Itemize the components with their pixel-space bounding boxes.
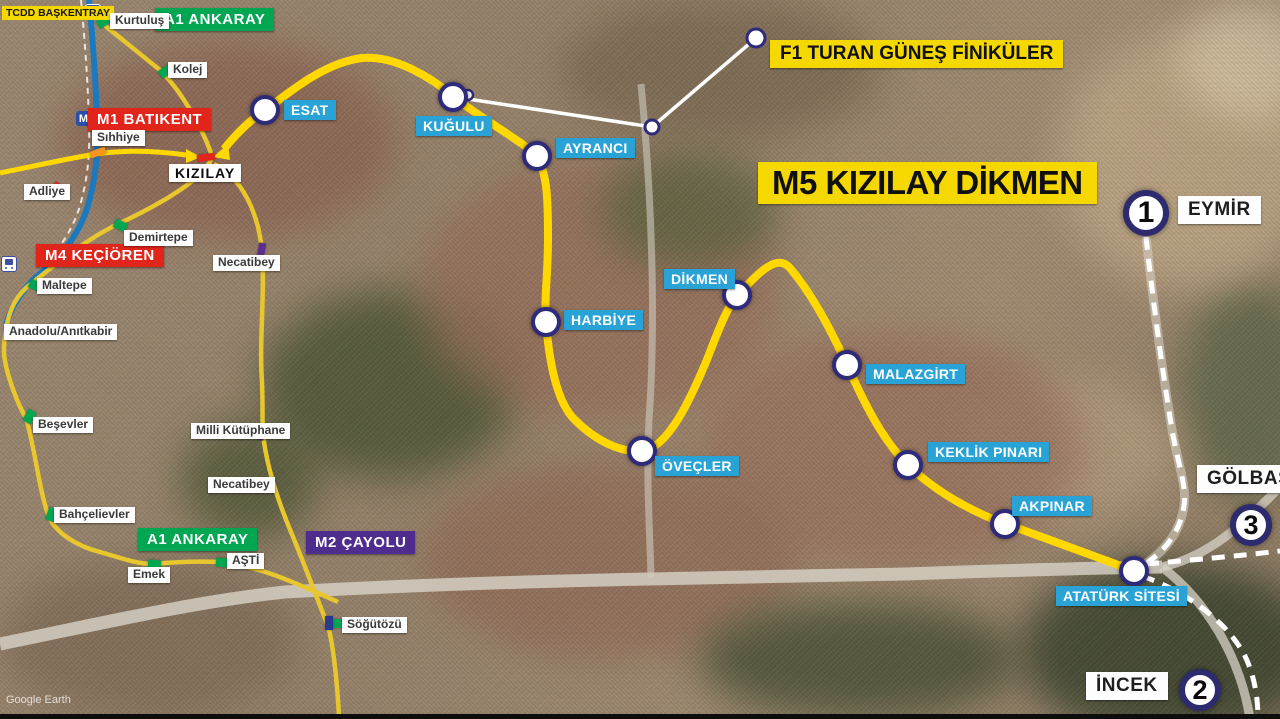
place-label-besevler: Beşevler	[33, 417, 93, 433]
road-dikmen-street	[641, 84, 652, 578]
place-label-adliye: Adliye	[24, 184, 70, 200]
station-malazgirt	[832, 350, 862, 380]
place-label-emek: Emek	[128, 567, 170, 583]
place-label-kolej: Kolej	[168, 62, 207, 78]
route-label-a1-ankaray-north: A1 ANKARAY	[155, 8, 274, 31]
station-label-ataturk-sitesi: ATATÜRK SİTESİ	[1056, 586, 1187, 606]
station-harbiye	[531, 307, 561, 337]
area-label-eymir: EYMİR	[1178, 196, 1261, 224]
numbered-marker-3: 3	[1230, 504, 1272, 546]
highway-road	[0, 567, 1162, 644]
google-earth-attribution: Google Earth	[6, 694, 71, 706]
station-label-ayranci: AYRANCI	[556, 138, 635, 158]
station-label-kugulu: KUĞULU	[416, 116, 492, 136]
place-label-asti: AŞTİ	[227, 553, 264, 569]
road-eymir	[1142, 237, 1185, 566]
station-esat	[250, 95, 280, 125]
m2-cayolu-line	[214, 164, 339, 716]
numbered-marker-2: 2	[1179, 669, 1221, 711]
place-label-bahcelievler: Bahçelievler	[54, 507, 135, 523]
route-label-m2-cayolu: M2 ÇAYOLU	[306, 531, 415, 554]
place-label-sogutozu: Söğütözü	[342, 617, 407, 633]
bottom-letterbox-bar	[0, 714, 1280, 719]
funicular-label: F1 TURAN GÜNEŞ FİNİKÜLER	[770, 40, 1063, 68]
route-label-m1-batikent: M1 BATIKENT	[88, 108, 211, 131]
place-label-anadolu-anitkabir: Anadolu/Anıtkabir	[4, 324, 117, 340]
place-label-kurtulus: Kurtuluş	[110, 13, 169, 29]
route-label-m4-kecioren: M4 KEÇİÖREN	[36, 244, 164, 267]
place-label-necatibey-north: Necatibey	[213, 255, 280, 271]
numbered-marker-1: 1	[1123, 190, 1169, 236]
blue-station-marker	[325, 616, 333, 630]
place-label-kizilay: KIZILAY	[169, 164, 241, 182]
station-label-akpinar: AKPINAR	[1012, 496, 1092, 516]
station-label-dikmen: DİKMEN	[664, 269, 735, 289]
station-ovecler	[627, 436, 657, 466]
station-ayranci	[522, 141, 552, 171]
station-label-harbiye: HARBİYE	[564, 310, 643, 330]
place-label-necatibey-south: Necatibey	[208, 477, 275, 493]
station-ataturk-sitesi	[1119, 556, 1149, 586]
area-label-golbasi: GÖLBAŞI	[1197, 465, 1280, 493]
station-label-malazgirt: MALAZGİRT	[866, 364, 965, 384]
f1-funicular-line	[455, 38, 756, 127]
area-label-incek: İNCEK	[1086, 672, 1168, 700]
place-label-demirtepe: Demirtepe	[124, 230, 193, 246]
route-label-tcdd-baskentray: TCDD BAŞKENTRAY	[2, 6, 114, 20]
funicular-node	[747, 29, 765, 47]
place-label-maltepe: Maltepe	[37, 278, 92, 294]
place-label-milli-kutuphane: Milli Kütüphane	[191, 423, 290, 439]
station-kugulu	[438, 82, 468, 112]
route-label-a1-ankaray-south: A1 ANKARAY	[138, 528, 257, 551]
m5-line	[224, 58, 1134, 571]
funicular-node	[645, 120, 659, 134]
station-keklik-pinari	[893, 450, 923, 480]
station-label-ovecler: ÖVEÇLER	[655, 456, 739, 476]
train-icon-left	[1, 256, 17, 272]
map-canvas: M ESATKUĞULUAYRANCIHARBİYEDİKMENÖVEÇLERM…	[0, 0, 1280, 719]
place-label-sihhiye: Sıhhiye	[92, 130, 145, 146]
map-title: M5 KIZILAY DİKMEN	[758, 162, 1097, 204]
station-label-esat: ESAT	[284, 100, 336, 120]
station-label-keklik-pinari: KEKLİK PINARI	[928, 442, 1049, 462]
